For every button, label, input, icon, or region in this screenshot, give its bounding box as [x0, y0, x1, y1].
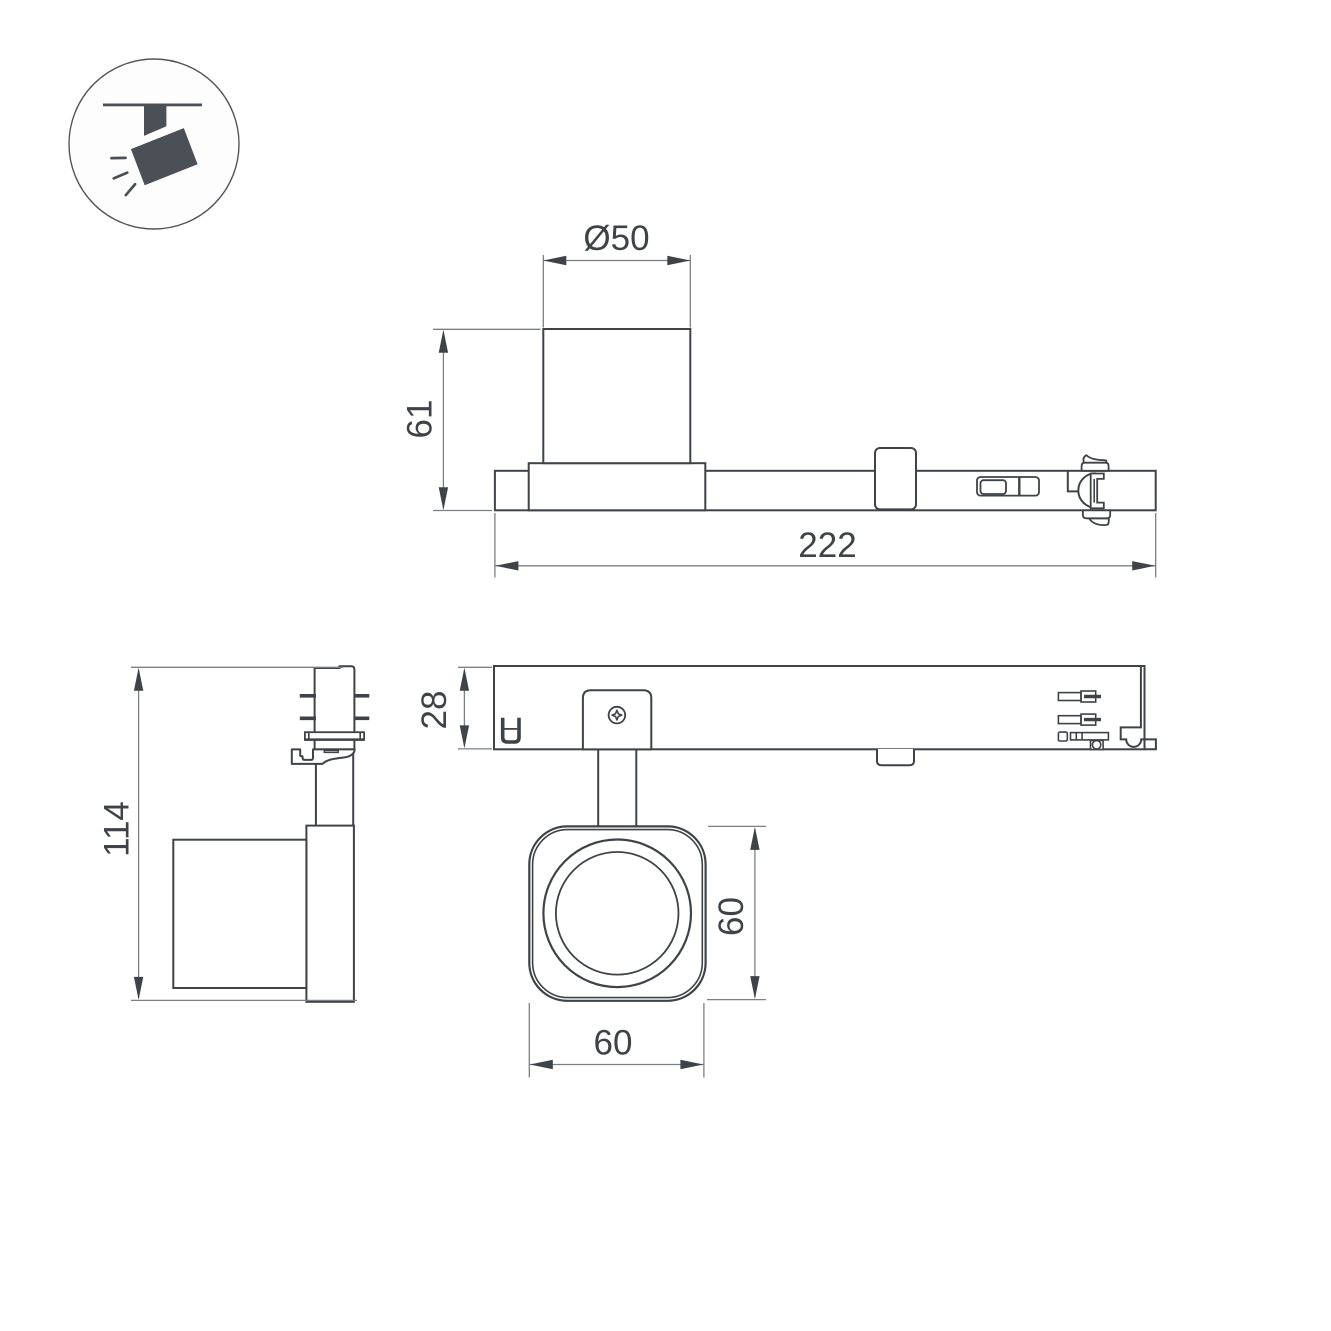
svg-text:222: 222: [798, 526, 856, 565]
svg-text:60: 60: [594, 1024, 633, 1063]
svg-text:114: 114: [98, 801, 137, 857]
svg-text:61: 61: [401, 400, 440, 439]
svg-text:Ø50: Ø50: [583, 219, 649, 258]
svg-text:60: 60: [712, 897, 751, 936]
svg-text:28: 28: [415, 691, 454, 730]
